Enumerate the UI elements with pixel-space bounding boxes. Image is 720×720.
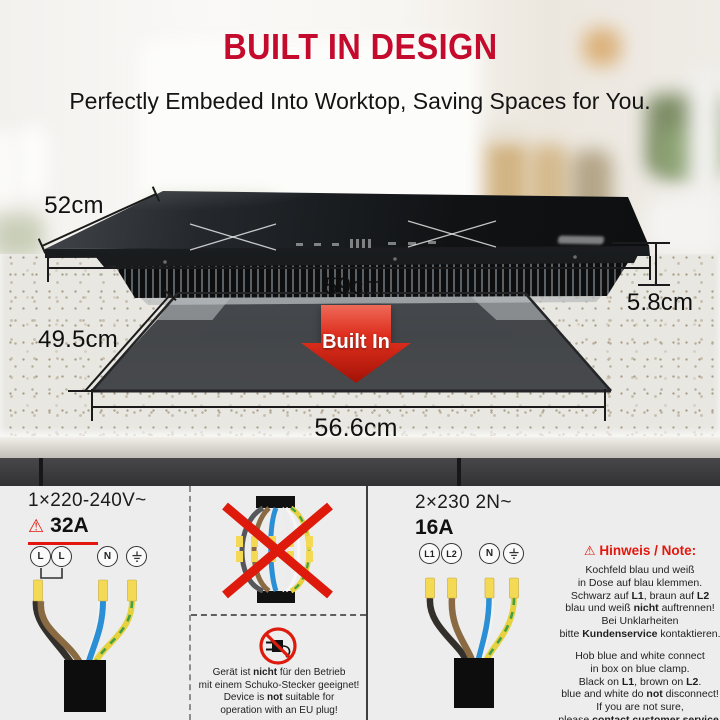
terminal-label: L2 — [446, 549, 457, 559]
built-in-label: Built In — [301, 331, 411, 354]
note-german: Kochfeld blau und weißin Dose auf blau k… — [556, 564, 720, 641]
terminal-label: L — [37, 551, 43, 562]
warning-triangle-icon: ⚠ — [28, 517, 44, 535]
single-phase-voltage: 1×220-240V~ — [28, 490, 146, 512]
hero-section: 52cm 59cm 5.8cm 49.5cm 56.6cm Built In B… — [0, 0, 720, 458]
single-phase-amperage-row: ⚠ 32A — [28, 514, 89, 538]
cabinet-door-gap — [39, 458, 43, 486]
terminal-n2: N — [479, 543, 500, 564]
terminal-label: L1 — [424, 549, 435, 559]
terminal-earth — [126, 546, 147, 567]
terminal-label: L — [58, 551, 64, 562]
red-underline — [28, 542, 98, 545]
jar-lid — [486, 126, 528, 140]
terminal-n: N — [97, 546, 118, 567]
plug-warning-text: Gerät ist nicht für den Betriebmit einem… — [195, 667, 363, 717]
white-jug — [0, 130, 16, 205]
warning-triangle-icon: ⚠ — [584, 543, 596, 558]
dim-label-hob-width: 59cm — [312, 273, 396, 301]
earth-icon — [507, 547, 521, 561]
earth-icon — [130, 550, 144, 564]
dim-label-cutout-depth: 49.5cm — [30, 326, 126, 354]
divider-dashed-vertical — [189, 486, 191, 720]
page-title-text: BUILT IN DESIGN — [223, 26, 497, 68]
greenery-far-left — [0, 214, 44, 258]
dim-label-hob-depth: 52cm — [34, 192, 114, 220]
note-heading-text: Hinweis / Note: — [599, 543, 696, 558]
page-subtitle: Perfectly Embeded Into Worktop, Saving S… — [0, 88, 720, 115]
divider-dashed-horizontal — [191, 614, 366, 616]
note-english: Hob blue and white connectin box on blue… — [556, 650, 720, 720]
terminal-label: N — [104, 551, 111, 562]
cabinet-strip — [0, 458, 720, 486]
divider-solid-vertical — [366, 486, 368, 720]
terminal-l-2: L — [51, 546, 72, 567]
terminal-label: N — [486, 548, 493, 559]
terminal-l1: L1 — [419, 543, 440, 564]
note-heading: ⚠ Hinweis / Note: — [560, 543, 720, 558]
terminal-l2: L2 — [441, 543, 462, 564]
two-phase-amperage: 16A — [415, 516, 454, 540]
page-title: BUILT IN DESIGN — [0, 26, 720, 68]
brand-logo — [557, 236, 604, 245]
terminal-l-1: L — [30, 546, 51, 567]
product-infographic: 52cm 59cm 5.8cm 49.5cm 56.6cm Built In B… — [0, 0, 720, 720]
white-bottle — [16, 126, 48, 198]
kettle — [644, 196, 716, 254]
dim-label-hob-height: 5.8cm — [618, 289, 702, 317]
dim-label-cutout-width: 56.6cm — [300, 414, 412, 443]
terminal-earth2 — [503, 543, 524, 564]
single-phase-amperage: 32A — [50, 514, 89, 538]
cabinet-door-gap — [457, 458, 461, 486]
two-phase-voltage: 2×230 2N~ — [415, 492, 512, 514]
